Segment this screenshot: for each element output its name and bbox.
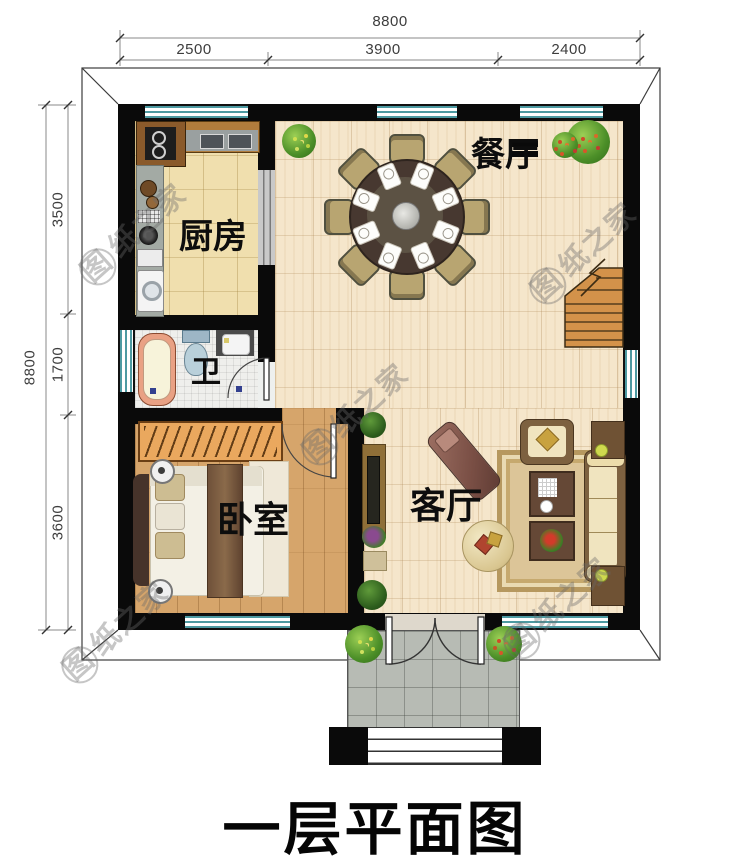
porch-bush-icon [345, 625, 383, 663]
dining-room-label: 餐厅 [455, 138, 555, 174]
plant-icon [282, 124, 316, 158]
dim-left-seg1: 3500 [50, 180, 67, 240]
bathroom-door [228, 358, 269, 400]
kitchen-label: 厨房 [163, 220, 263, 256]
bedroom-label: 卧室 [203, 501, 303, 539]
dim-left-seg3: 3600 [50, 493, 67, 553]
dim-top-seg2: 3900 [353, 41, 413, 58]
page-title: 一层平面图 [0, 782, 750, 866]
entrance-double-door [386, 617, 484, 664]
living-room-label: 客厅 [396, 487, 496, 525]
dim-top-total: 8800 [360, 13, 420, 30]
dim-left-seg2: 1700 [50, 335, 67, 395]
plant-icon [552, 132, 578, 158]
bathroom-label: 卫 [181, 357, 231, 389]
dim-left-total: 8800 [22, 338, 39, 398]
plant-icon [357, 580, 387, 610]
floor-plan-page: 餐厅 厨房 卫 卧室 客厅 图纸之家 图纸之家 图纸之家 图纸之家 图纸之家 8… [0, 0, 750, 868]
dim-top-seg1: 2500 [164, 41, 224, 58]
dim-top-seg3: 2400 [539, 41, 599, 58]
